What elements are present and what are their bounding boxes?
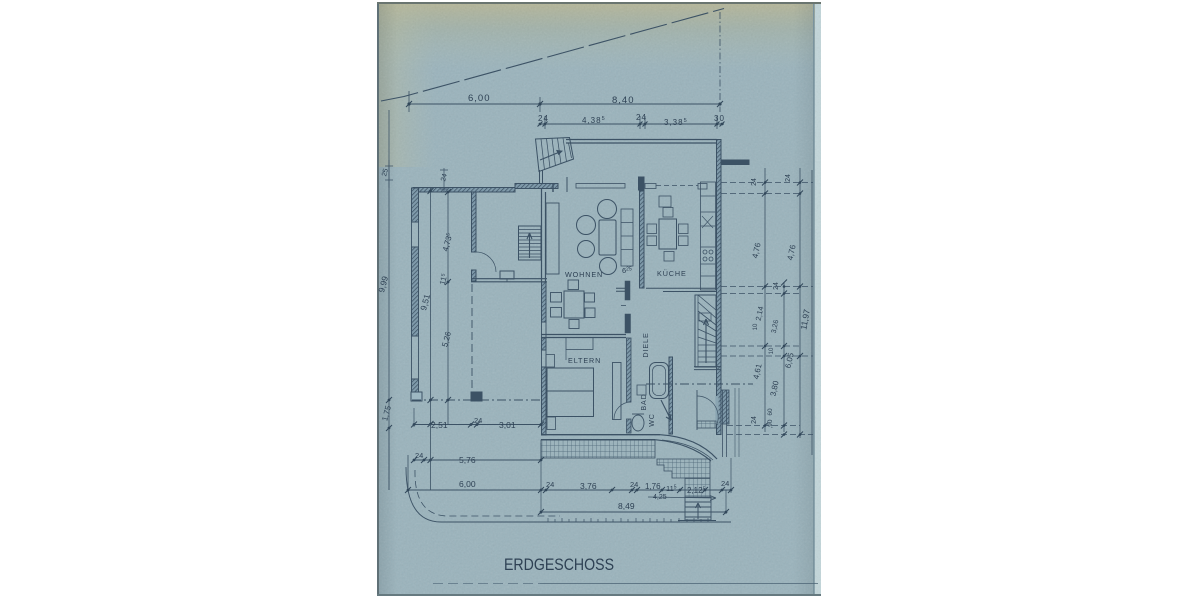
- svg-text:4,25: 4,25: [653, 494, 667, 501]
- svg-text:ERDGESCHOSS: ERDGESCHOSS: [504, 556, 614, 574]
- svg-text:3,76: 3,76: [580, 481, 597, 491]
- svg-text:BAD: BAD: [641, 393, 648, 410]
- svg-text:24: 24: [751, 416, 758, 424]
- svg-text:6,00: 6,00: [459, 479, 476, 489]
- svg-text:1,76: 1,76: [645, 482, 661, 491]
- svg-text:KÜCHE: KÜCHE: [657, 269, 687, 278]
- svg-text:24: 24: [721, 479, 729, 488]
- svg-text:,90: ,90: [767, 419, 774, 428]
- svg-text:60: 60: [767, 408, 774, 416]
- svg-text:ELTERN: ELTERN: [568, 356, 601, 365]
- svg-text:8,49: 8,49: [618, 501, 635, 511]
- svg-text:3,01: 3,01: [499, 420, 516, 430]
- svg-text:24: 24: [773, 282, 780, 290]
- svg-text:24: 24: [474, 416, 482, 425]
- svg-text:24: 24: [785, 174, 792, 182]
- svg-text:10: 10: [769, 347, 775, 354]
- svg-text:DIELE: DIELE: [641, 332, 650, 357]
- svg-text:30: 30: [714, 114, 725, 123]
- svg-text:24: 24: [415, 451, 423, 460]
- svg-text:5,76: 5,76: [459, 455, 476, 465]
- svg-text:10: 10: [753, 323, 759, 330]
- svg-text:WOHNEN: WOHNEN: [565, 270, 603, 279]
- svg-text:8,40: 8,40: [612, 95, 635, 106]
- svg-text:6,00: 6,00: [468, 93, 491, 104]
- svg-text:2,51: 2,51: [431, 420, 448, 430]
- svg-text:24: 24: [630, 480, 638, 489]
- svg-text:24: 24: [751, 178, 758, 186]
- svg-text:24: 24: [538, 114, 549, 123]
- svg-text:WC: WC: [649, 413, 656, 426]
- svg-text:24: 24: [636, 113, 647, 122]
- svg-text:24: 24: [546, 480, 554, 489]
